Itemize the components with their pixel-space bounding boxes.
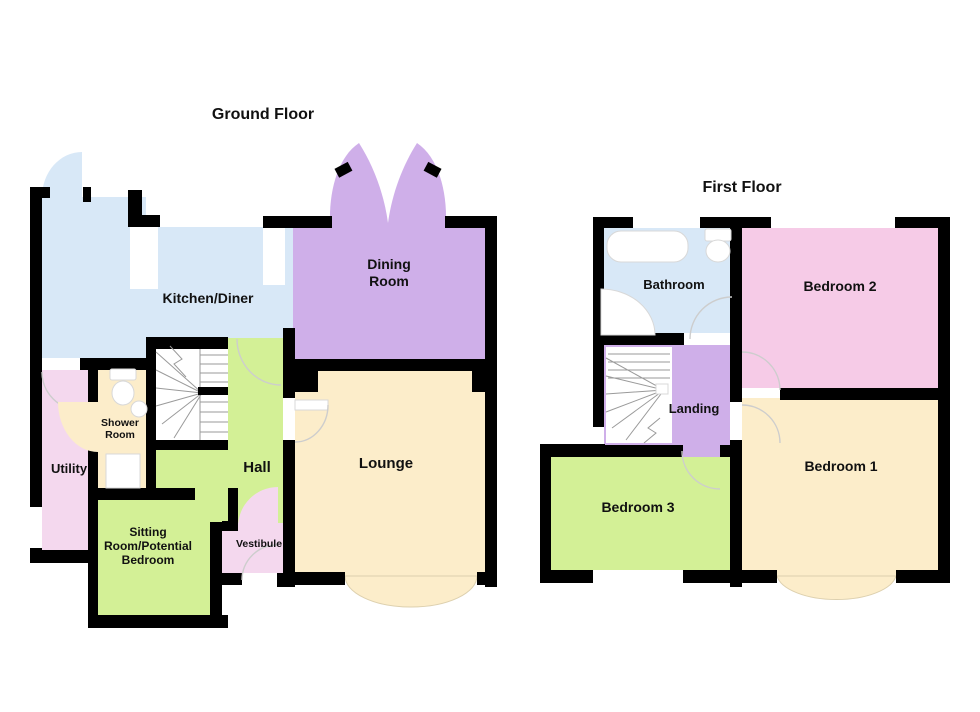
label-bedroom3: Bedroom 3	[601, 499, 674, 515]
wall	[146, 349, 156, 500]
room-dining	[293, 223, 485, 359]
kitchen-window-recess-1	[130, 227, 158, 289]
wall	[683, 570, 777, 583]
label-lounge: Lounge	[359, 455, 413, 472]
door-gap-utility	[42, 358, 80, 370]
label-utility: Utility	[51, 461, 88, 476]
wall	[88, 500, 98, 628]
label-kitchen-diner: Kitchen/Diner	[162, 290, 254, 306]
dining-french-door-left-leaf	[330, 143, 388, 223]
label-dining-2: Room	[369, 273, 409, 289]
floor-plan-svg: Ground Floor Kitchen/Diner Dining Room L…	[0, 0, 980, 712]
wall	[88, 615, 228, 628]
toilet-bowl	[112, 381, 134, 405]
bedroom1-bay-window	[777, 576, 896, 600]
wall	[30, 550, 92, 563]
room-utility	[42, 370, 90, 550]
label-sitting-3: Bedroom	[122, 553, 175, 567]
bathtub	[607, 231, 688, 262]
wall	[222, 573, 242, 585]
wall	[222, 521, 238, 531]
dining-french-door-right-leaf	[388, 143, 446, 223]
label-landing: Landing	[669, 401, 720, 416]
wall	[283, 328, 295, 587]
label-sitting-1: Sitting	[129, 525, 166, 539]
label-shower-1: Shower	[101, 417, 139, 429]
first-stairwell	[606, 347, 672, 443]
wall	[30, 187, 42, 507]
wall	[295, 359, 497, 371]
wall	[477, 572, 497, 585]
wall	[146, 440, 228, 450]
wall	[146, 337, 228, 349]
wall-chimney	[472, 371, 485, 392]
wall	[295, 572, 345, 585]
wall	[83, 187, 91, 202]
wall	[540, 444, 551, 573]
toilet-bowl	[706, 240, 730, 262]
shower-tray	[106, 454, 140, 488]
lounge-bay-window	[345, 576, 477, 607]
label-bedroom2: Bedroom 2	[803, 278, 876, 294]
wall	[546, 445, 683, 457]
toilet-cistern	[110, 369, 136, 380]
wall	[277, 573, 295, 587]
stairs-newel	[656, 384, 668, 394]
wall	[30, 187, 50, 198]
stairs-newel	[198, 387, 228, 395]
ground-floor-plan: Ground Floor Kitchen/Diner Dining Room L…	[30, 106, 497, 628]
room-bedroom1	[742, 398, 938, 578]
label-vestibule: Vestibule	[236, 538, 282, 550]
wall	[780, 388, 938, 400]
label-bedroom1: Bedroom 1	[804, 458, 877, 474]
wall	[485, 216, 497, 587]
door-gap-lounge	[283, 398, 295, 440]
wall	[938, 217, 950, 583]
wall	[128, 190, 142, 227]
door-gap-bedroom1	[730, 402, 742, 440]
label-bathroom: Bathroom	[643, 277, 704, 292]
floor-plan: Ground Floor Kitchen/Diner Dining Room L…	[0, 0, 980, 712]
room-bedroom2	[742, 228, 938, 388]
label-shower-2: Room	[105, 429, 135, 441]
label-sitting-2: Room/Potential	[104, 539, 192, 553]
wall	[88, 488, 195, 500]
wall	[720, 445, 742, 457]
label-dining-1: Dining	[367, 256, 411, 272]
sink	[131, 401, 147, 417]
toilet-cistern	[705, 229, 731, 241]
ground-floor-title: Ground Floor	[212, 106, 314, 123]
wall	[540, 570, 593, 583]
wall	[263, 216, 332, 228]
wall	[210, 522, 222, 615]
wall	[142, 215, 160, 227]
first-floor-plan: First Floor Bathroom Bedroom 2 Landing B…	[540, 179, 950, 600]
lounge-door-leaf	[295, 400, 328, 410]
first-floor-title: First Floor	[702, 179, 781, 196]
wall-chimney	[295, 371, 318, 392]
label-hall: Hall	[243, 459, 271, 476]
kitchen-window-recess-2	[263, 227, 285, 285]
wall	[896, 570, 950, 583]
